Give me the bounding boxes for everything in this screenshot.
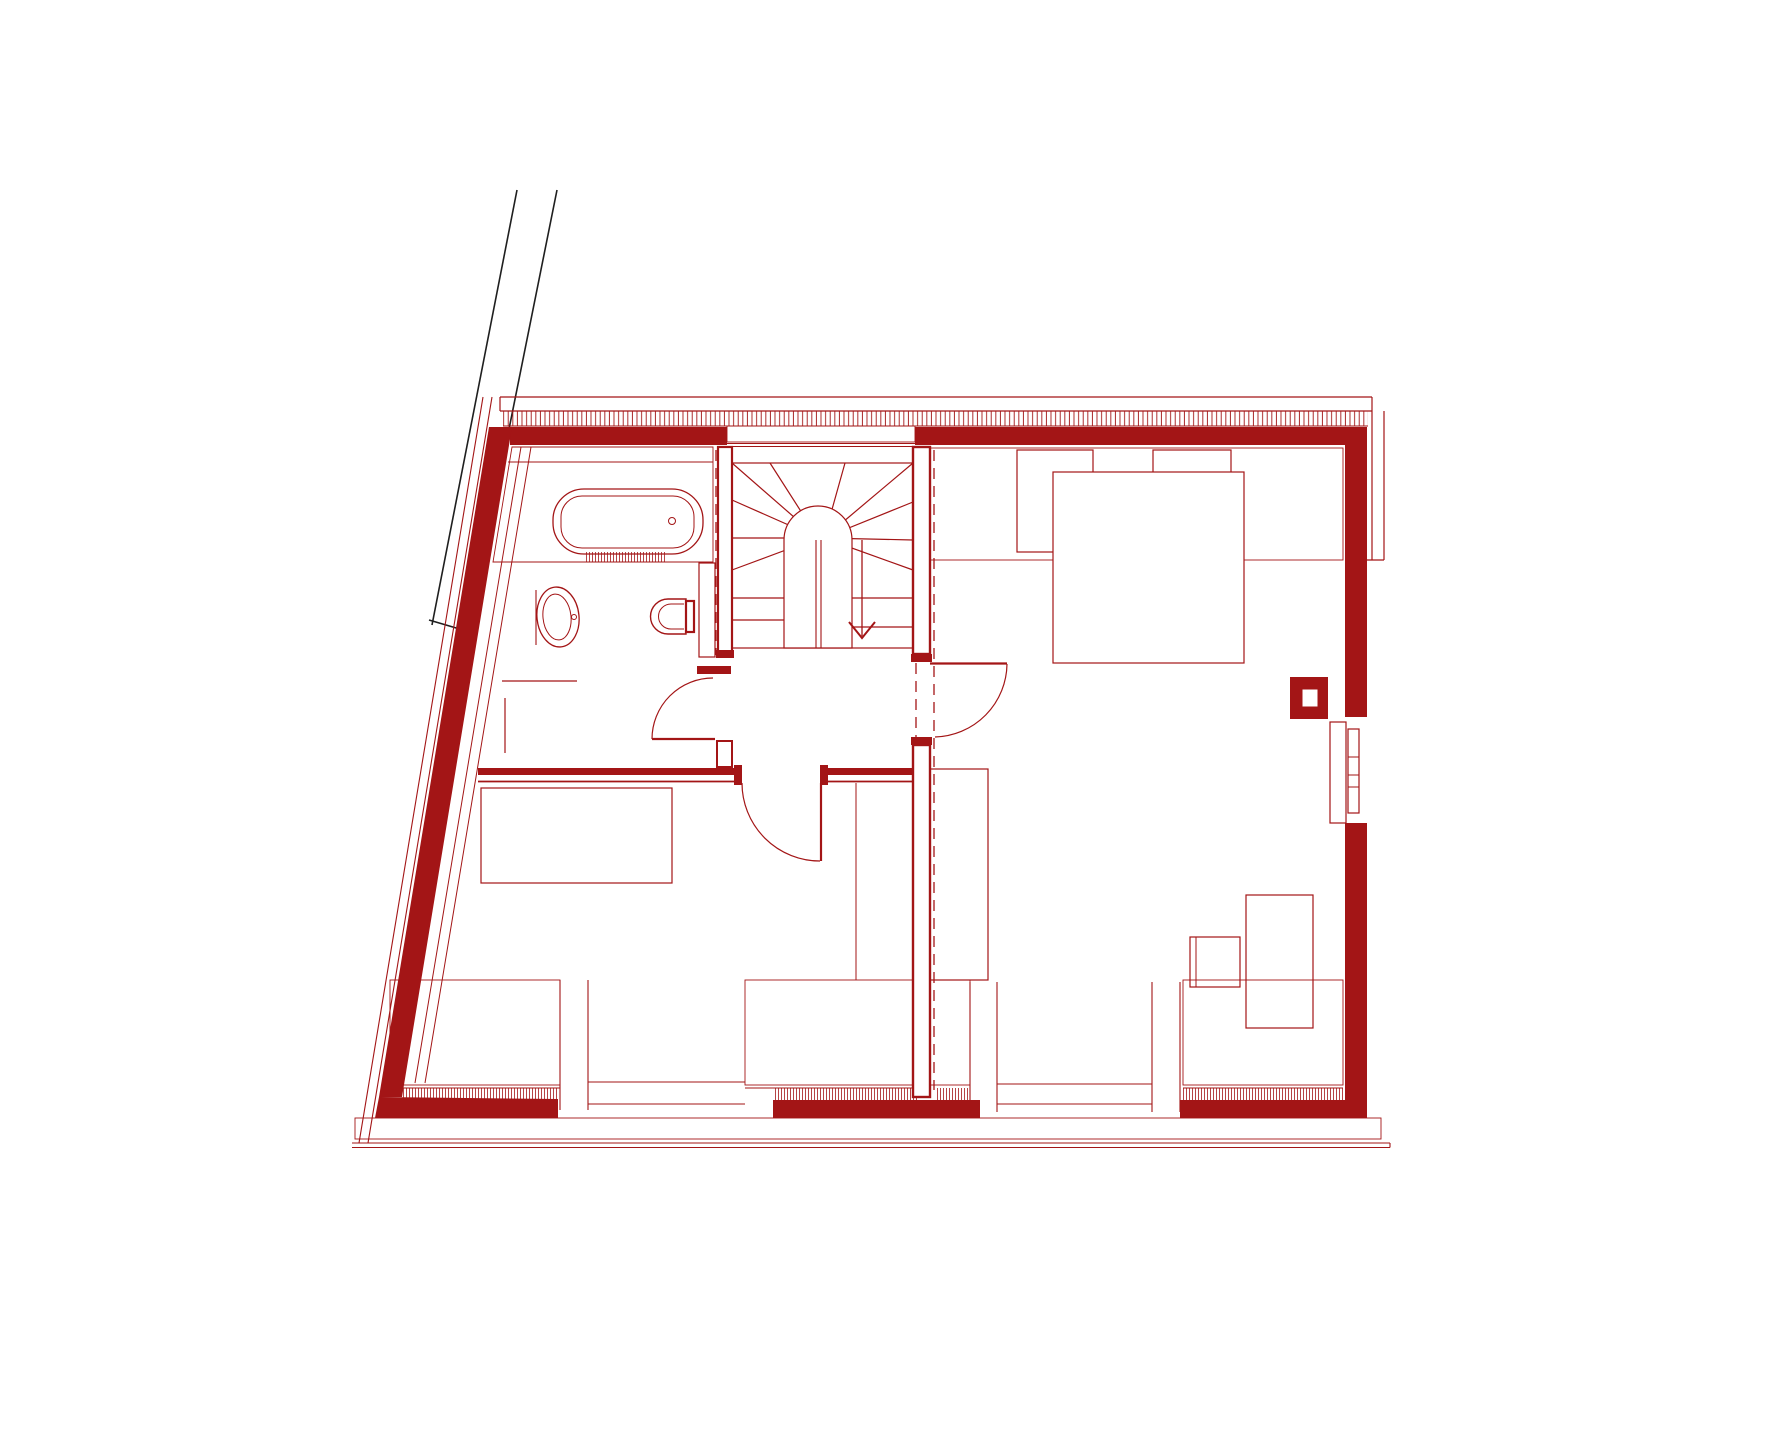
facade-window-bay-small (930, 980, 970, 1100)
washbasin (534, 585, 582, 649)
bed-bottom-left (481, 788, 672, 883)
floor-plan-drawing (0, 0, 1767, 1447)
chimney (1290, 677, 1328, 719)
stair-top-window-band (727, 426, 915, 447)
facade-window-bay-center (745, 980, 917, 1100)
cabinet-small (1190, 937, 1240, 987)
wardrobe-right-room (930, 769, 988, 980)
door-right-room (930, 664, 1007, 738)
roof-eave-hatch-band (503, 411, 1368, 426)
stair-handrail-arch (784, 506, 852, 648)
bathtub (553, 489, 703, 562)
facade-window-bay-right (1183, 980, 1343, 1100)
bathroom-counter (502, 681, 577, 753)
side-window-right-wall (1330, 722, 1359, 823)
floor-plan-page (0, 0, 1767, 1447)
cabinet-tall (1246, 895, 1313, 1028)
door-bathroom (652, 678, 715, 739)
hall-south-wall (478, 765, 913, 785)
glass-front-right (997, 1084, 1152, 1104)
bed-right (1053, 472, 1244, 663)
door-bottom-room (742, 783, 821, 861)
winder-stair (732, 463, 913, 648)
glass-front-left (588, 1082, 745, 1104)
towel-radiator (585, 552, 667, 562)
balcony-slab-edge (352, 1118, 1390, 1148)
toilet (651, 599, 695, 634)
